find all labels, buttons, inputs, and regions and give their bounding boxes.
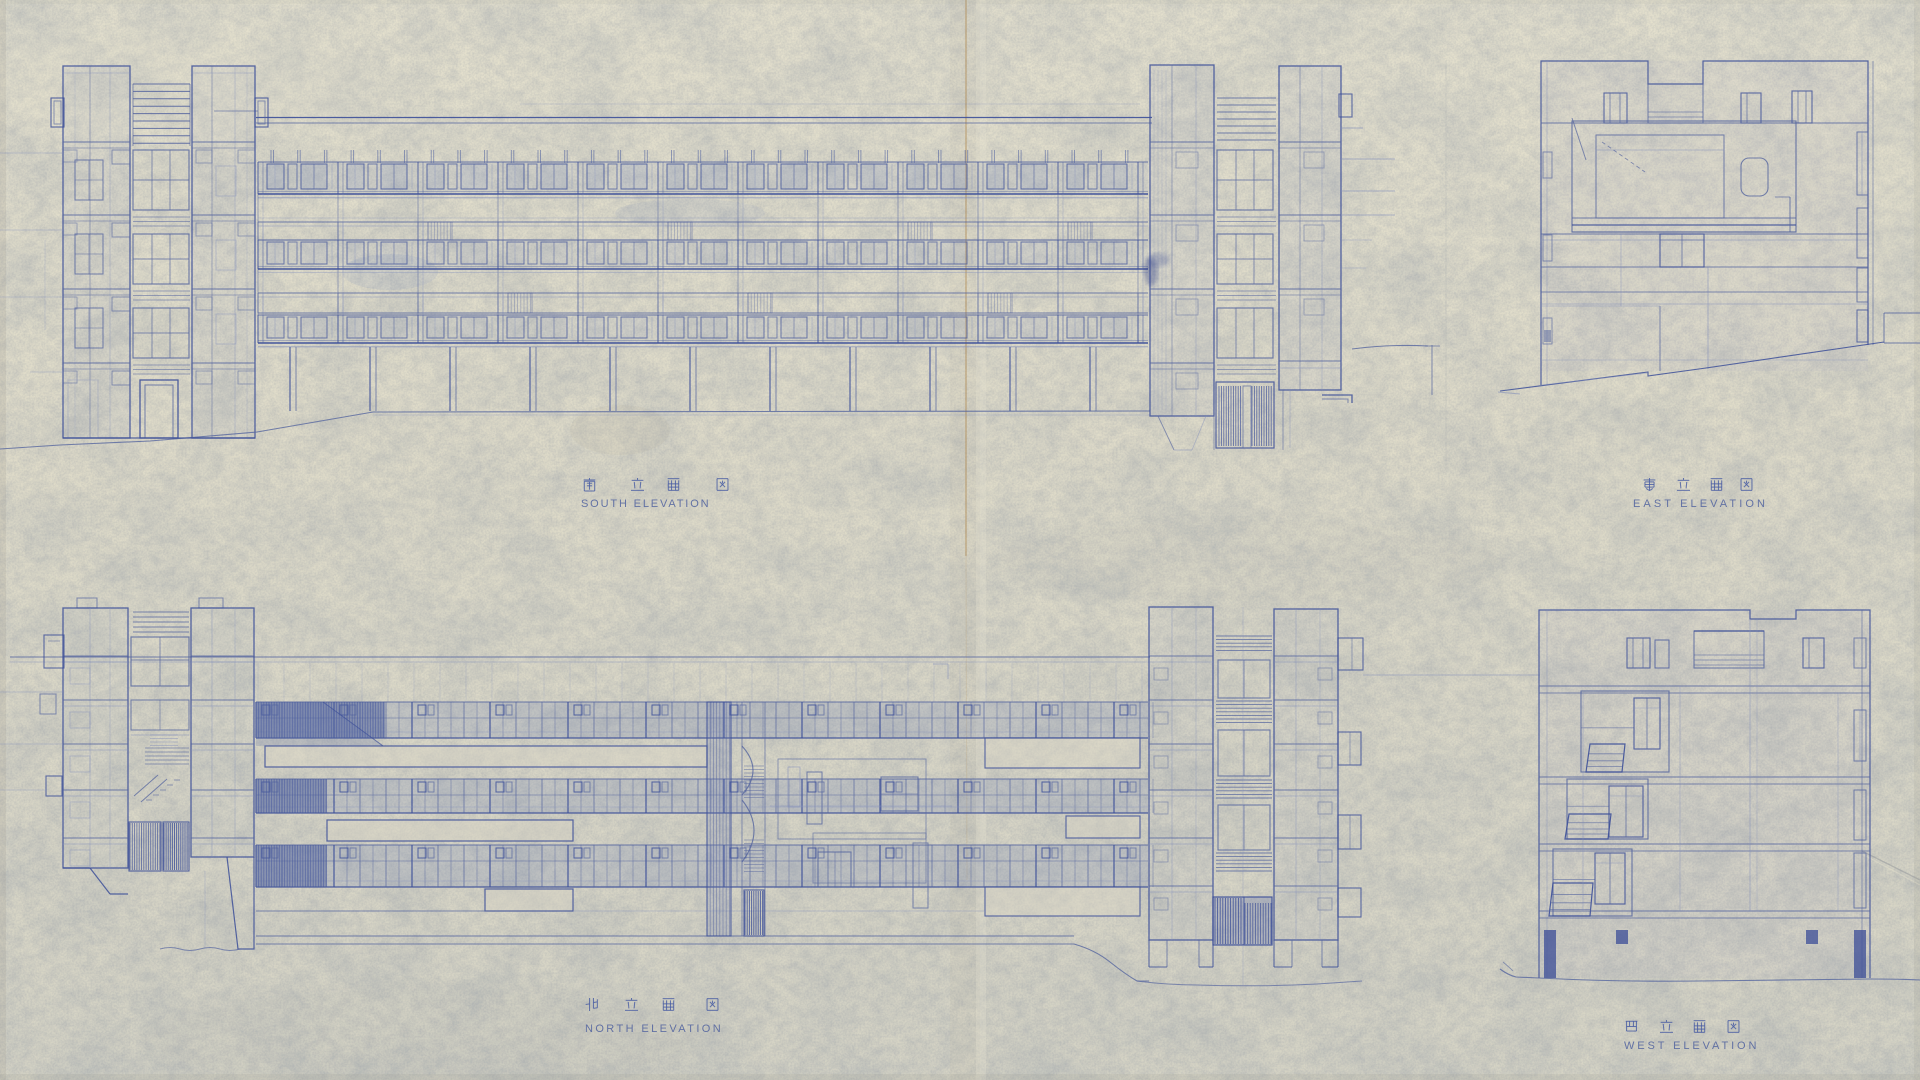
svg-text:EAST ELEVATION: EAST ELEVATION — [1633, 498, 1768, 510]
svg-text:NORTH ELEVATION: NORTH ELEVATION — [585, 1023, 723, 1035]
svg-text:SOUTH ELEVATION: SOUTH ELEVATION — [581, 498, 710, 510]
svg-text:WEST ELEVATION: WEST ELEVATION — [1624, 1040, 1759, 1052]
